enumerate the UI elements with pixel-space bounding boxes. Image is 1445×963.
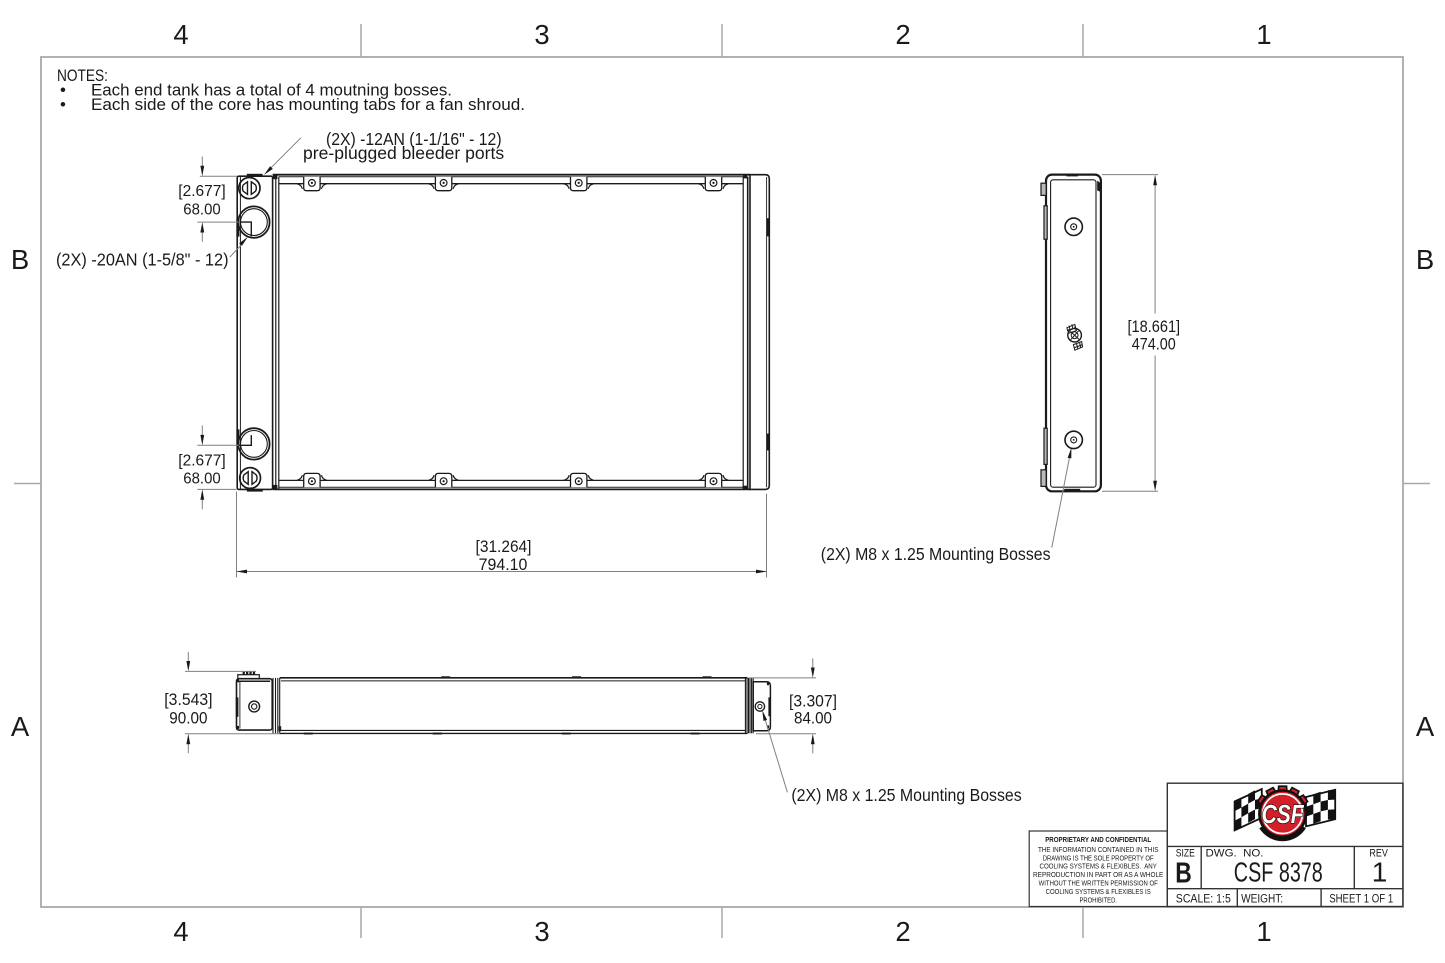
svg-text:•: • (60, 95, 66, 114)
svg-text:1: 1 (1372, 857, 1388, 888)
svg-text:4: 4 (173, 916, 188, 947)
svg-text:(2X) M8 x 1.25 Mounting Bosses: (2X) M8 x 1.25 Mounting Bosses (821, 544, 1051, 564)
svg-text:794.10: 794.10 (479, 556, 528, 574)
svg-text:B: B (1175, 857, 1192, 889)
svg-text:DRAWING IS THE SOLE PROPERTY O: DRAWING IS THE SOLE PROPERTY OF (1043, 854, 1155, 862)
svg-text:1: 1 (1256, 19, 1271, 50)
svg-text:2: 2 (895, 19, 910, 50)
svg-text:68.00: 68.00 (183, 201, 220, 218)
svg-text:[31.264]: [31.264] (476, 538, 532, 556)
svg-text:CSF 8378: CSF 8378 (1234, 857, 1323, 888)
svg-text:[3.307]: [3.307] (789, 692, 837, 710)
svg-text:3: 3 (534, 916, 549, 947)
svg-text:[3.543]: [3.543] (164, 691, 212, 709)
svg-text:474.00: 474.00 (1132, 335, 1176, 353)
svg-text:COOLING SYSTEMS & FLEXIBLES IS: COOLING SYSTEMS & FLEXIBLES IS (1046, 888, 1151, 896)
svg-text:SCALE: 1:5: SCALE: 1:5 (1176, 893, 1231, 905)
svg-text:4: 4 (173, 19, 188, 50)
svg-text:A: A (11, 711, 30, 742)
svg-text:B: B (11, 244, 29, 275)
svg-text:90.00: 90.00 (169, 709, 207, 727)
svg-text:REPRODUCTION IN PART OR AS A W: REPRODUCTION IN PART OR AS A WHOLE (1033, 871, 1164, 879)
svg-text:COOLING SYSTEMS & FLEXIBLES.: COOLING SYSTEMS & FLEXIBLES. ANY (1040, 863, 1158, 871)
svg-text:pre-plugged bleeder ports: pre-plugged bleeder ports (303, 143, 504, 163)
svg-text:THE INFORMATION CONTAINED IN T: THE INFORMATION CONTAINED IN THIS (1038, 846, 1159, 854)
svg-text:2: 2 (895, 916, 910, 947)
svg-text:Each side of the core has moun: Each side of the core has mounting tabs … (91, 95, 525, 114)
svg-text:[18.661]: [18.661] (1128, 318, 1181, 336)
svg-text:A: A (1416, 711, 1435, 742)
svg-text:84.00: 84.00 (794, 710, 832, 728)
svg-text:B: B (1416, 244, 1434, 275)
svg-text:WITHOUT THE WRITTEN PERMISSION: WITHOUT THE WRITTEN PERMISSION OF (1039, 880, 1159, 888)
svg-text:(2X) M8 x 1.25 Mounting Bosses: (2X) M8 x 1.25 Mounting Bosses (791, 785, 1021, 805)
svg-text:SHEET 1 OF 1: SHEET 1 OF 1 (1329, 893, 1393, 905)
svg-text:3: 3 (534, 19, 549, 50)
svg-text:(2X) -20AN (1-5/8" - 12): (2X) -20AN (1-5/8" - 12) (56, 250, 229, 270)
svg-text:1: 1 (1256, 916, 1271, 947)
svg-text:[2.677]: [2.677] (178, 183, 226, 200)
svg-text:68.00: 68.00 (183, 471, 220, 488)
svg-text:WEIGHT:: WEIGHT: (1241, 893, 1283, 905)
svg-text:[2.677]: [2.677] (178, 452, 226, 469)
svg-text:CSF: CSF (1262, 799, 1305, 829)
svg-text:PROPRIETARY AND CONFIDENTIAL: PROPRIETARY AND CONFIDENTIAL (1045, 835, 1151, 844)
svg-text:PROHIBITED.: PROHIBITED. (1079, 896, 1117, 904)
